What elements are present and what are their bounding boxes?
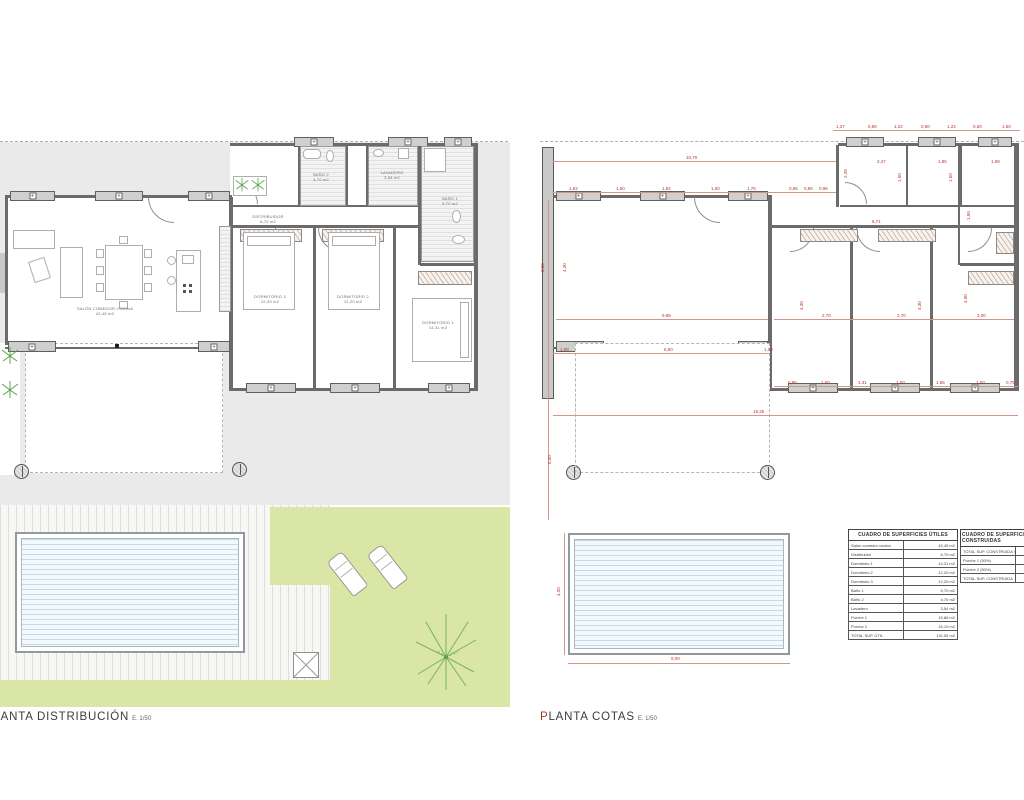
table-row: Dormitorio 312,20 m2 xyxy=(849,577,958,586)
window xyxy=(918,137,956,147)
row-label: Baño 2 xyxy=(849,595,904,604)
dimension-label: 9,85 xyxy=(662,313,671,318)
row-label: Dormitorio 3 xyxy=(849,577,904,586)
row-label: TOTAL SUP. CONSTRUIDA VIVIENDA xyxy=(961,547,1016,556)
row-value: 5,70 m2 xyxy=(903,586,958,595)
dimension-label: 1,85 xyxy=(938,159,947,164)
row-value: 14,31 m2 xyxy=(903,559,958,568)
table-row: Distribuidor6,70 m2 xyxy=(849,550,958,559)
plan-title-text: PLANTA COTAS xyxy=(540,711,635,723)
dimension-label: 1,92 xyxy=(569,186,578,191)
row-label: Dormitorio 1 xyxy=(849,559,904,568)
table-row: Lavadero3,54 m2 xyxy=(849,604,958,613)
row-value: 12,20 m2 xyxy=(903,577,958,586)
wall xyxy=(1014,143,1019,391)
dimension-label: 1,22 xyxy=(894,124,903,129)
door-arc xyxy=(845,182,867,204)
dim-line xyxy=(553,415,1018,416)
wall xyxy=(930,228,933,389)
dimension-label: 1,70 xyxy=(747,186,756,191)
dimension-label: 4,40 xyxy=(562,263,567,272)
closet xyxy=(878,229,936,242)
dimension-label: 0,96 xyxy=(819,186,828,191)
dim-line xyxy=(774,319,1014,320)
dimension-label: 1,22 xyxy=(947,124,956,129)
window xyxy=(870,383,920,393)
row-label: Baño 1 xyxy=(849,586,904,595)
table-row: Porche 119,86 m2 xyxy=(849,613,958,622)
door-arc xyxy=(968,228,992,252)
window xyxy=(978,137,1012,147)
porch-1 xyxy=(575,343,770,473)
dimension-label: 1,50 xyxy=(948,173,953,182)
dimension-label: 0,60 xyxy=(868,124,877,129)
dimension-label: 9,00 xyxy=(671,656,680,661)
table-title: CUADRO DE SUPERFICIES CONSTRUIDAS xyxy=(961,530,1024,547)
row-value xyxy=(1015,565,1024,574)
plan-title-text: PLANTA DISTRIBUCIÓN xyxy=(0,711,129,723)
dimension-label: 10,70 xyxy=(686,155,697,160)
plan-scale: E. 1/50 xyxy=(132,716,151,722)
window xyxy=(846,137,884,147)
table-row: TOTAL SUP. CONSTRUIDA xyxy=(961,574,1024,583)
table-row: Porche 2 (50%) xyxy=(961,565,1024,574)
dim-line xyxy=(556,319,768,320)
row-value xyxy=(1015,547,1024,556)
row-value xyxy=(1015,574,1024,583)
dimension-label: 0,75 xyxy=(1006,380,1015,385)
closet xyxy=(800,229,858,242)
table-row: Baño 15,70 m2 xyxy=(849,586,958,595)
pool-water xyxy=(574,539,784,649)
dimension-label: 3,08 xyxy=(540,263,545,272)
dim-line xyxy=(564,533,565,655)
row-value: 3,54 m2 xyxy=(903,604,958,613)
dimension-label: 0,96 xyxy=(789,186,798,191)
wall xyxy=(836,145,839,207)
door-arc xyxy=(856,228,880,252)
dimension-label: 5,00 xyxy=(547,455,552,464)
porch-column xyxy=(760,465,775,480)
table-row: Baño 24,70 m2 xyxy=(849,595,958,604)
dimension-label: 0,60 xyxy=(973,124,982,129)
wall xyxy=(840,205,1016,207)
row-label: Dormitorio 2 xyxy=(849,568,904,577)
plan-title-cotas: PLANTA COTASE. 1/50 xyxy=(540,711,657,723)
dimension-label: 2,70 xyxy=(822,313,831,318)
dimension-label: 2,47 xyxy=(877,159,886,164)
table-row: TOTAL SUP. ÚTIL132,05 m2 xyxy=(849,631,958,640)
dimension-label: 19,25 xyxy=(753,409,764,414)
table-title: CUADRO DE SUPERFICIES ÚTILES xyxy=(849,530,958,541)
plan-scale: E. 1/50 xyxy=(638,716,657,722)
wall xyxy=(960,145,962,207)
dimension-label: 1,50 xyxy=(616,186,625,191)
dimension-label: 0,95 xyxy=(788,380,797,385)
dim-line xyxy=(774,386,1018,387)
row-label: Porche 1 xyxy=(849,613,904,622)
row-value xyxy=(1015,556,1024,565)
table-row: Porche 1 (50%) xyxy=(961,556,1024,565)
dim-line xyxy=(553,161,836,162)
dimension-label: 1,65 xyxy=(936,380,945,385)
dimension-label: 1,50 xyxy=(896,380,905,385)
row-label: Porche 2 xyxy=(849,622,904,631)
dimension-label: 0,96 xyxy=(804,186,813,191)
wall xyxy=(906,145,908,207)
wall xyxy=(958,145,960,265)
dimension-label: 1,92 xyxy=(662,186,671,191)
row-label: Distribuidor xyxy=(849,550,904,559)
dimension-label: 1,50 xyxy=(976,380,985,385)
dimension-label: 6,90 xyxy=(664,347,673,352)
row-label: Porche 1 (50%) xyxy=(961,556,1016,565)
dimension-label: 1,27 xyxy=(836,124,845,129)
dimension-label: 1,00 xyxy=(711,186,720,191)
table-row: TOTAL SUP. CONSTRUIDA VIVIENDA xyxy=(961,547,1024,556)
row-value: 16,10 m2 xyxy=(903,622,958,631)
wall xyxy=(960,263,1016,266)
dimension-label: 1,50 xyxy=(966,211,971,220)
porch-column xyxy=(566,465,581,480)
plan-title-distribucion: PLANTA DISTRIBUCIÓNE. 1/50 xyxy=(0,711,151,723)
table-row: Salón comedor cocina42,45 m2 xyxy=(849,541,958,550)
door-arc xyxy=(694,197,720,223)
table-row: Dormitorio 212,20 m2 xyxy=(849,568,958,577)
dimension-label: 2,70 xyxy=(897,313,906,318)
wardrobe xyxy=(968,271,1014,285)
dimension-label: 4,20 xyxy=(556,587,561,596)
dimension-label: 4,30 xyxy=(917,301,922,310)
dim-line xyxy=(548,200,549,520)
row-value: 42,45 m2 xyxy=(903,541,958,550)
dim-line xyxy=(553,353,770,354)
wall xyxy=(850,228,853,389)
dimension-label: 0,60 xyxy=(921,124,930,129)
dimension-label: 1,00 xyxy=(764,347,773,352)
dimension-label: 1,50 xyxy=(821,380,830,385)
dimension-label: 1,31 xyxy=(858,380,867,385)
table-row: Porche 216,10 m2 xyxy=(849,622,958,631)
superficies-construidas-table: CUADRO DE SUPERFICIES CONSTRUIDAS TOTAL … xyxy=(960,529,1024,583)
table-row: Dormitorio 114,31 m2 xyxy=(849,559,958,568)
window xyxy=(950,383,1000,393)
row-value: 19,86 m2 xyxy=(903,613,958,622)
row-label: Porche 2 (50%) xyxy=(961,565,1016,574)
row-label: TOTAL SUP. CONSTRUIDA xyxy=(961,574,1016,583)
dimension-label: 3,00 xyxy=(977,313,986,318)
row-value: 12,20 m2 xyxy=(903,568,958,577)
dimension-label: 1,99 xyxy=(991,159,1000,164)
dimension-label: 4,90 xyxy=(963,294,968,303)
dimension-label: 4,30 xyxy=(799,301,804,310)
row-value: 6,70 m2 xyxy=(903,550,958,559)
row-label: TOTAL SUP. ÚTIL xyxy=(849,631,904,640)
dimension-label: 1,60 xyxy=(1002,124,1011,129)
row-label: Salón comedor cocina xyxy=(849,541,904,550)
dimension-label: 6,71 xyxy=(872,219,881,224)
row-value: 4,70 m2 xyxy=(903,595,958,604)
row-value: 132,05 m2 xyxy=(903,631,958,640)
superficies-utiles-table: CUADRO DE SUPERFICIES ÚTILES Salón comed… xyxy=(848,529,958,640)
dim-line xyxy=(833,130,1020,131)
dimension-label: 1,50 xyxy=(897,173,902,182)
dimension-label: 2,28 xyxy=(843,169,848,178)
drawing-sheet: SALÓN COMEDOR COCINA42,45 m2DISTRIBUIDOR… xyxy=(0,0,1024,800)
projection-line xyxy=(575,398,576,473)
dim-line xyxy=(568,663,790,664)
dimension-label: 1,08 xyxy=(560,347,569,352)
row-label: Lavadero xyxy=(849,604,904,613)
wardrobe xyxy=(996,232,1014,254)
dim-line xyxy=(553,192,836,193)
